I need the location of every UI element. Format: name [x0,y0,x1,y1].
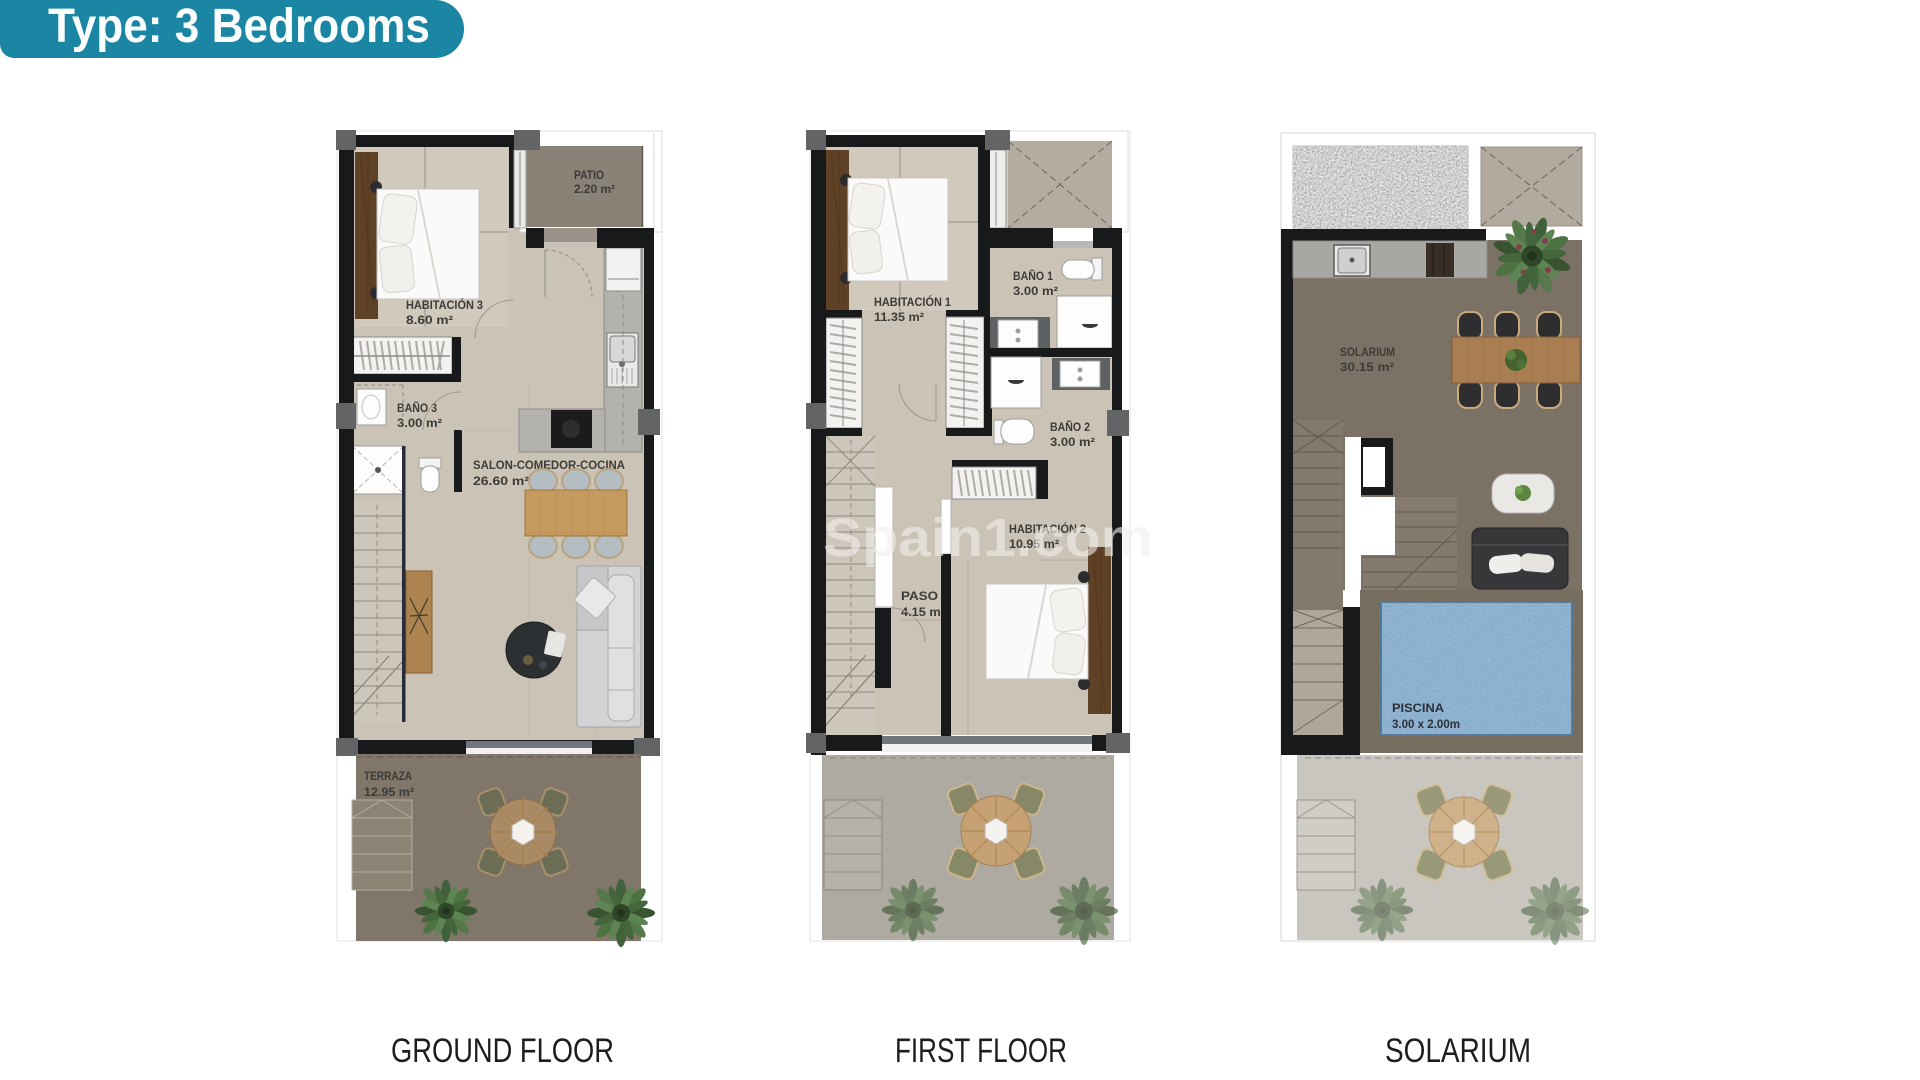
svg-text:HABITACIÓN 1: HABITACIÓN 1 [874,294,951,309]
svg-text:12.95 m²: 12.95 m² [364,785,414,799]
svg-text:SOLARIUM: SOLARIUM [1385,1032,1531,1070]
svg-text:GROUND FLOOR: GROUND FLOOR [391,1032,614,1070]
svg-text:HABITACIÓN 3: HABITACIÓN 3 [406,297,483,312]
svg-text:3.00 m²: 3.00 m² [1050,435,1095,449]
svg-text:30.15 m²: 30.15 m² [1340,360,1394,374]
svg-text:Type: 3 Bedrooms: Type: 3 Bedrooms [48,0,430,53]
svg-text:FIRST FLOOR: FIRST FLOOR [895,1032,1067,1070]
svg-text:2.20 m²: 2.20 m² [574,182,615,196]
svg-text:3.00 m²: 3.00 m² [397,416,442,430]
svg-text:Spain1.com: Spain1.com [823,508,1153,568]
svg-text:BAÑO 2: BAÑO 2 [1050,419,1090,434]
svg-text:3.00 m²: 3.00 m² [1013,284,1058,298]
svg-text:PATIO: PATIO [574,168,604,182]
svg-text:PISCINA: PISCINA [1392,701,1444,715]
svg-text:11.35 m²: 11.35 m² [874,310,924,324]
svg-text:8.60 m²: 8.60 m² [406,313,453,327]
svg-text:BAÑO 1: BAÑO 1 [1013,268,1053,283]
svg-text:SOLARIUM: SOLARIUM [1340,345,1395,359]
svg-text:3.00 x 2.00m: 3.00 x 2.00m [1392,717,1460,731]
svg-text:TERRAZA: TERRAZA [364,769,412,783]
svg-text:26.60 m²: 26.60 m² [473,474,529,488]
svg-text:PASO: PASO [901,589,938,603]
